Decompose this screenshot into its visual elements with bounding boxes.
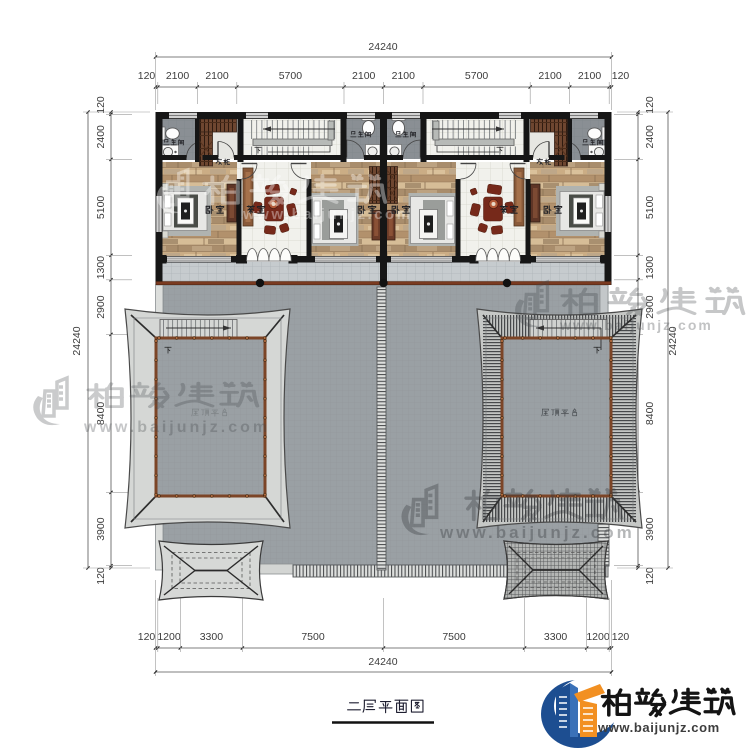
svg-text:120: 120 <box>138 70 156 82</box>
svg-text:5700: 5700 <box>279 70 303 82</box>
svg-text:5100: 5100 <box>644 196 656 220</box>
svg-text:7500: 7500 <box>442 631 466 643</box>
svg-text:3300: 3300 <box>200 631 224 643</box>
svg-text:2100: 2100 <box>578 70 602 82</box>
svg-text:5100: 5100 <box>95 196 107 220</box>
svg-text:2100: 2100 <box>392 70 416 82</box>
svg-text:www.baijunjz.com: www.baijunjz.com <box>83 419 270 436</box>
svg-text:2100: 2100 <box>352 70 376 82</box>
svg-text:2100: 2100 <box>166 70 190 82</box>
svg-text:3900: 3900 <box>95 517 107 541</box>
svg-text:24240: 24240 <box>368 41 397 53</box>
svg-text:24240: 24240 <box>368 656 397 668</box>
svg-text:120: 120 <box>644 96 656 114</box>
svg-text:1300: 1300 <box>644 256 656 280</box>
svg-text:2100: 2100 <box>205 70 229 82</box>
svg-text:120: 120 <box>95 96 107 114</box>
svg-text:2400: 2400 <box>95 125 107 149</box>
svg-text:8400: 8400 <box>644 402 656 426</box>
svg-text:2900: 2900 <box>644 295 656 319</box>
svg-text:120: 120 <box>95 567 107 585</box>
svg-text:3300: 3300 <box>544 631 568 643</box>
svg-text:www.baijunjz.com: www.baijunjz.com <box>559 317 713 333</box>
svg-text:120: 120 <box>612 70 630 82</box>
svg-text:3900: 3900 <box>644 517 656 541</box>
svg-text:www.baijunjz.com: www.baijunjz.com <box>242 206 412 223</box>
svg-text:2900: 2900 <box>95 295 107 319</box>
svg-text:1200: 1200 <box>157 631 181 643</box>
svg-text:www.baijunjz.com: www.baijunjz.com <box>597 720 720 735</box>
svg-text:2100: 2100 <box>538 70 562 82</box>
svg-text:24240: 24240 <box>71 326 83 355</box>
svg-text:1200: 1200 <box>586 631 610 643</box>
svg-text:7500: 7500 <box>301 631 325 643</box>
svg-text:2400: 2400 <box>644 125 656 149</box>
svg-text:5700: 5700 <box>465 70 489 82</box>
svg-text:120: 120 <box>138 631 156 643</box>
svg-text:www.baijunjz.com: www.baijunjz.com <box>439 523 635 542</box>
svg-text:120: 120 <box>612 631 630 643</box>
svg-text:1300: 1300 <box>95 256 107 280</box>
svg-text:120: 120 <box>644 567 656 585</box>
